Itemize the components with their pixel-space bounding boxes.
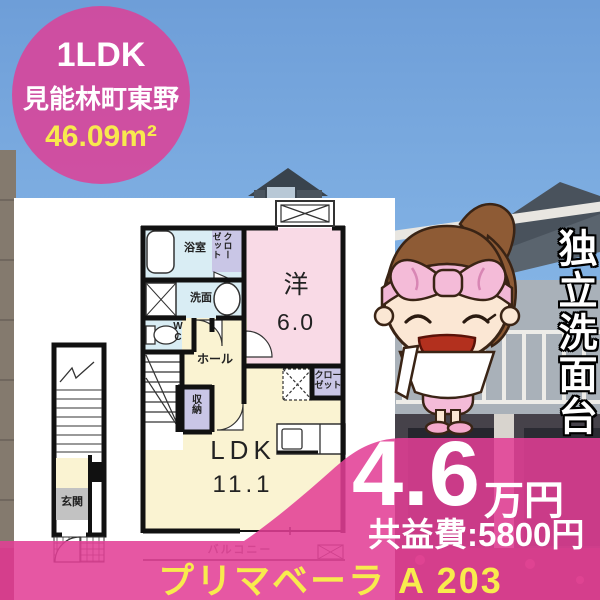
feature-vertical-label: 独立洗面台	[546, 228, 600, 438]
price-amount: 4.6	[352, 428, 480, 520]
flyer-root: 浴室 クロー ゼット 洗面 WC ホール 収納 洋 6.0 クロー ゼット LD…	[0, 0, 600, 600]
badge-area: 46.09m²	[45, 120, 157, 154]
badge-layout-type: 1LDK	[57, 36, 146, 75]
badge-location: 見能林町東野	[23, 79, 179, 116]
property-badge: 1LDK 見能林町東野 46.09m²	[12, 6, 190, 184]
property-name: プリマベーラ A 203	[158, 552, 503, 600]
price-common-fee: 共益費:5800円	[368, 508, 584, 556]
